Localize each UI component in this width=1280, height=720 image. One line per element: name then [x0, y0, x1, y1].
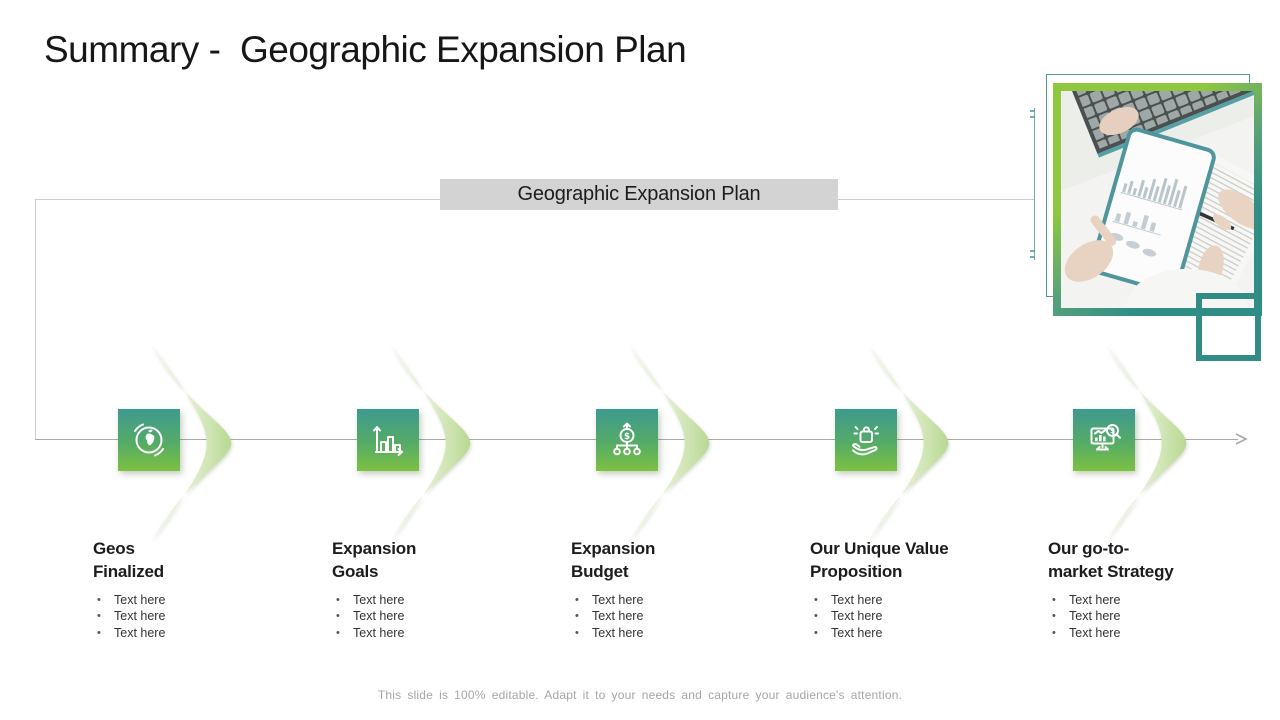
step-expansion-budget: $ Expansion Budget Text here Text here T… — [571, 345, 743, 655]
decor-tick — [1030, 250, 1035, 252]
decor-tick — [1030, 110, 1035, 112]
step-go-to-market-strategy: $ Our go-to- market Strategy Text here T… — [1048, 345, 1220, 655]
bar-chart-icon — [368, 420, 408, 460]
step-bullets: Text here Text here Text here — [810, 592, 970, 642]
bullet-item: Text here — [571, 608, 731, 625]
step-unique-value-proposition: Our Unique Value Proposition Text here T… — [810, 345, 982, 655]
bullet-item: Text here — [810, 592, 970, 609]
frame-left-line — [35, 199, 36, 440]
market-analytics-icon: $ — [1084, 420, 1124, 460]
bullet-item: Text here — [332, 592, 492, 609]
bullet-item: Text here — [93, 592, 253, 609]
editable-note: This slide is 100% editable. Adapt it to… — [0, 688, 1280, 702]
banner-heading: Geographic Expansion Plan — [440, 179, 838, 210]
step-icon-tile: $ — [1073, 409, 1135, 471]
svg-text:$: $ — [624, 432, 630, 442]
svg-text:$: $ — [1110, 427, 1115, 435]
bullet-item: Text here — [332, 608, 492, 625]
timeline-arrow-icon — [1233, 431, 1249, 447]
step-icon-tile — [118, 409, 180, 471]
step-geos-finalized: Geos Finalized Text here Text here Text … — [93, 345, 265, 655]
decor-vertical-line — [1034, 108, 1035, 260]
decor-tick — [1030, 256, 1035, 258]
step-title: Expansion Goals — [332, 538, 492, 584]
step-icon-tile: $ — [596, 409, 658, 471]
step-icon-tile — [357, 409, 419, 471]
bullet-item: Text here — [1048, 592, 1208, 609]
step-bullets: Text here Text here Text here — [1048, 592, 1208, 642]
bullet-item: Text here — [1048, 625, 1208, 642]
slide-canvas: Summary - Geographic Expansion Plan Geog… — [0, 0, 1280, 720]
step-title: Our Unique Value Proposition — [810, 538, 970, 584]
tablet-photo — [1053, 83, 1262, 316]
bullet-item: Text here — [810, 608, 970, 625]
slide-title: Summary - Geographic Expansion Plan — [44, 30, 686, 71]
tablet-photo-illustration — [1061, 91, 1254, 308]
step-title: Our go-to- market Strategy — [1048, 538, 1208, 584]
decor-tick — [1030, 116, 1035, 118]
step-bullets: Text here Text here Text here — [332, 592, 492, 642]
step-bullets: Text here Text here Text here — [571, 592, 731, 642]
bullet-item: Text here — [810, 625, 970, 642]
bullet-item: Text here — [93, 608, 253, 625]
step-icon-tile — [835, 409, 897, 471]
hand-gift-icon — [846, 420, 886, 460]
step-bullets: Text here Text here Text here — [93, 592, 253, 642]
step-title: Geos Finalized — [93, 538, 253, 584]
bullet-item: Text here — [332, 625, 492, 642]
budget-allocation-icon: $ — [607, 420, 647, 460]
step-title: Expansion Budget — [571, 538, 731, 584]
step-expansion-goals: Expansion Goals Text here Text here Text… — [332, 345, 504, 655]
bullet-item: Text here — [1048, 608, 1208, 625]
bullet-item: Text here — [93, 625, 253, 642]
bullet-item: Text here — [571, 592, 731, 609]
bullet-item: Text here — [571, 625, 731, 642]
decor-square — [1196, 293, 1261, 361]
globe-icon — [129, 420, 169, 460]
